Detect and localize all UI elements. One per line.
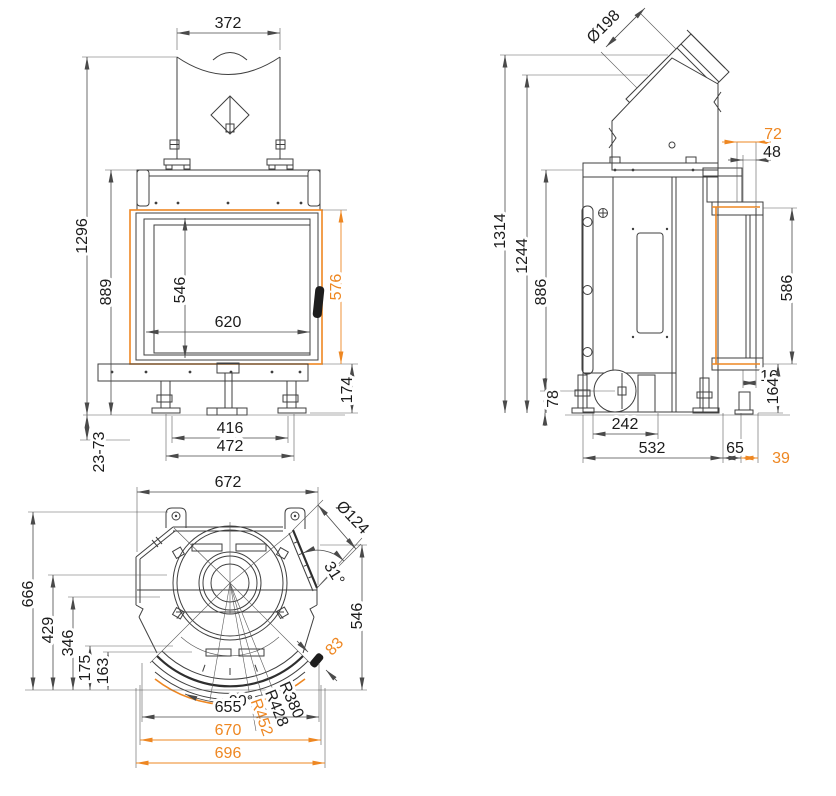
mount-lug-right-icon — [285, 508, 305, 529]
dim-front-glass-height: 546 — [172, 277, 189, 304]
top-view: 672 Ø124 31° 666 429 346 175 163 — [20, 474, 372, 768]
dim-side-inlet-offset: 242 — [612, 416, 639, 433]
flue-clip-left-icon — [170, 140, 179, 149]
dim-side-inlet-height: 78 — [545, 390, 562, 408]
dim-top-width-655: 655 — [215, 699, 242, 716]
dim-side-overall-height: 1314 — [492, 213, 509, 249]
dim-front-body-height: 889 — [98, 279, 115, 306]
dim-front-glass-width: 620 — [215, 314, 242, 331]
dim-top-corner-angle: 31° — [320, 559, 347, 589]
drawing-canvas: 372 1296 889 546 620 576 174 416 — [0, 0, 836, 796]
dim-top-handle-offset: 83 — [323, 634, 348, 659]
dim-top-width-670: 670 — [215, 722, 242, 739]
dim-top-depth-546: 546 — [349, 603, 366, 630]
dim-front-leg-range: 23-73 — [91, 431, 108, 472]
dim-side-glass-height: 586 — [779, 275, 796, 302]
side-door — [703, 142, 763, 412]
door-outline-accent — [130, 210, 322, 364]
mount-lug-left-icon — [166, 508, 186, 528]
dim-front-flue-width: 372 — [215, 15, 242, 32]
dim-side-body-height: 886 — [533, 279, 550, 306]
bolt-symbol-icon — [599, 209, 608, 218]
technical-drawing-page: 372 1296 889 546 620 576 174 416 — [0, 0, 836, 796]
dim-side-plinth-height: 164 — [765, 378, 782, 405]
top-dimensions: 672 Ø124 31° 666 429 346 175 163 — [20, 474, 372, 768]
dim-top-width-696: 696 — [215, 745, 242, 762]
dim-front-feet-inner: 416 — [217, 420, 244, 437]
dim-front-plinth-height: 174 — [339, 377, 356, 404]
dim-top-width: 672 — [215, 474, 242, 491]
dim-side-offset-39: 39 — [772, 450, 790, 467]
front-door — [130, 210, 325, 364]
side-dimensions: Ø198 72 48 1314 1244 886 78 — [492, 7, 797, 467]
dim-top-inlet-diameter: Ø124 — [333, 498, 372, 538]
front-flue-shroud — [164, 53, 293, 170]
dim-side-offset-72: 72 — [764, 126, 782, 143]
dim-side-offset-65: 65 — [726, 440, 744, 457]
top-door-handle-icon — [309, 652, 325, 669]
door-handle-icon — [312, 286, 324, 319]
dim-top-depth-429: 429 — [40, 617, 57, 644]
front-leg-right — [278, 381, 306, 413]
dim-front-overall-height: 1296 — [74, 218, 91, 254]
dim-top-depth-175: 175 — [77, 655, 94, 682]
front-plinth — [83, 363, 345, 415]
dim-front-door-height: 576 — [328, 274, 345, 301]
side-foot-front — [739, 392, 750, 410]
dim-side-offset-48: 48 — [763, 144, 781, 161]
dim-top-depth-163: 163 — [95, 658, 112, 685]
damper-handle-icon — [211, 96, 249, 134]
dim-side-depth: 532 — [639, 440, 666, 457]
dim-side-collar-height: 1244 — [514, 238, 531, 274]
side-body — [540, 157, 790, 415]
front-leg-left — [152, 381, 180, 413]
side-leg-right — [693, 378, 719, 413]
dim-top-depth-346: 346 — [60, 630, 77, 657]
front-dimensions: 372 1296 889 546 620 576 174 416 — [74, 15, 358, 472]
dim-front-feet-outer: 472 — [217, 438, 244, 455]
access-panel — [637, 233, 663, 333]
front-view: 372 1296 889 546 620 576 174 416 — [74, 15, 358, 472]
side-view: Ø198 72 48 1314 1244 886 78 — [492, 7, 797, 467]
dim-top-depth-total: 666 — [20, 581, 37, 608]
front-top-box — [137, 170, 320, 210]
dim-side-flue-diameter: Ø198 — [584, 7, 624, 47]
